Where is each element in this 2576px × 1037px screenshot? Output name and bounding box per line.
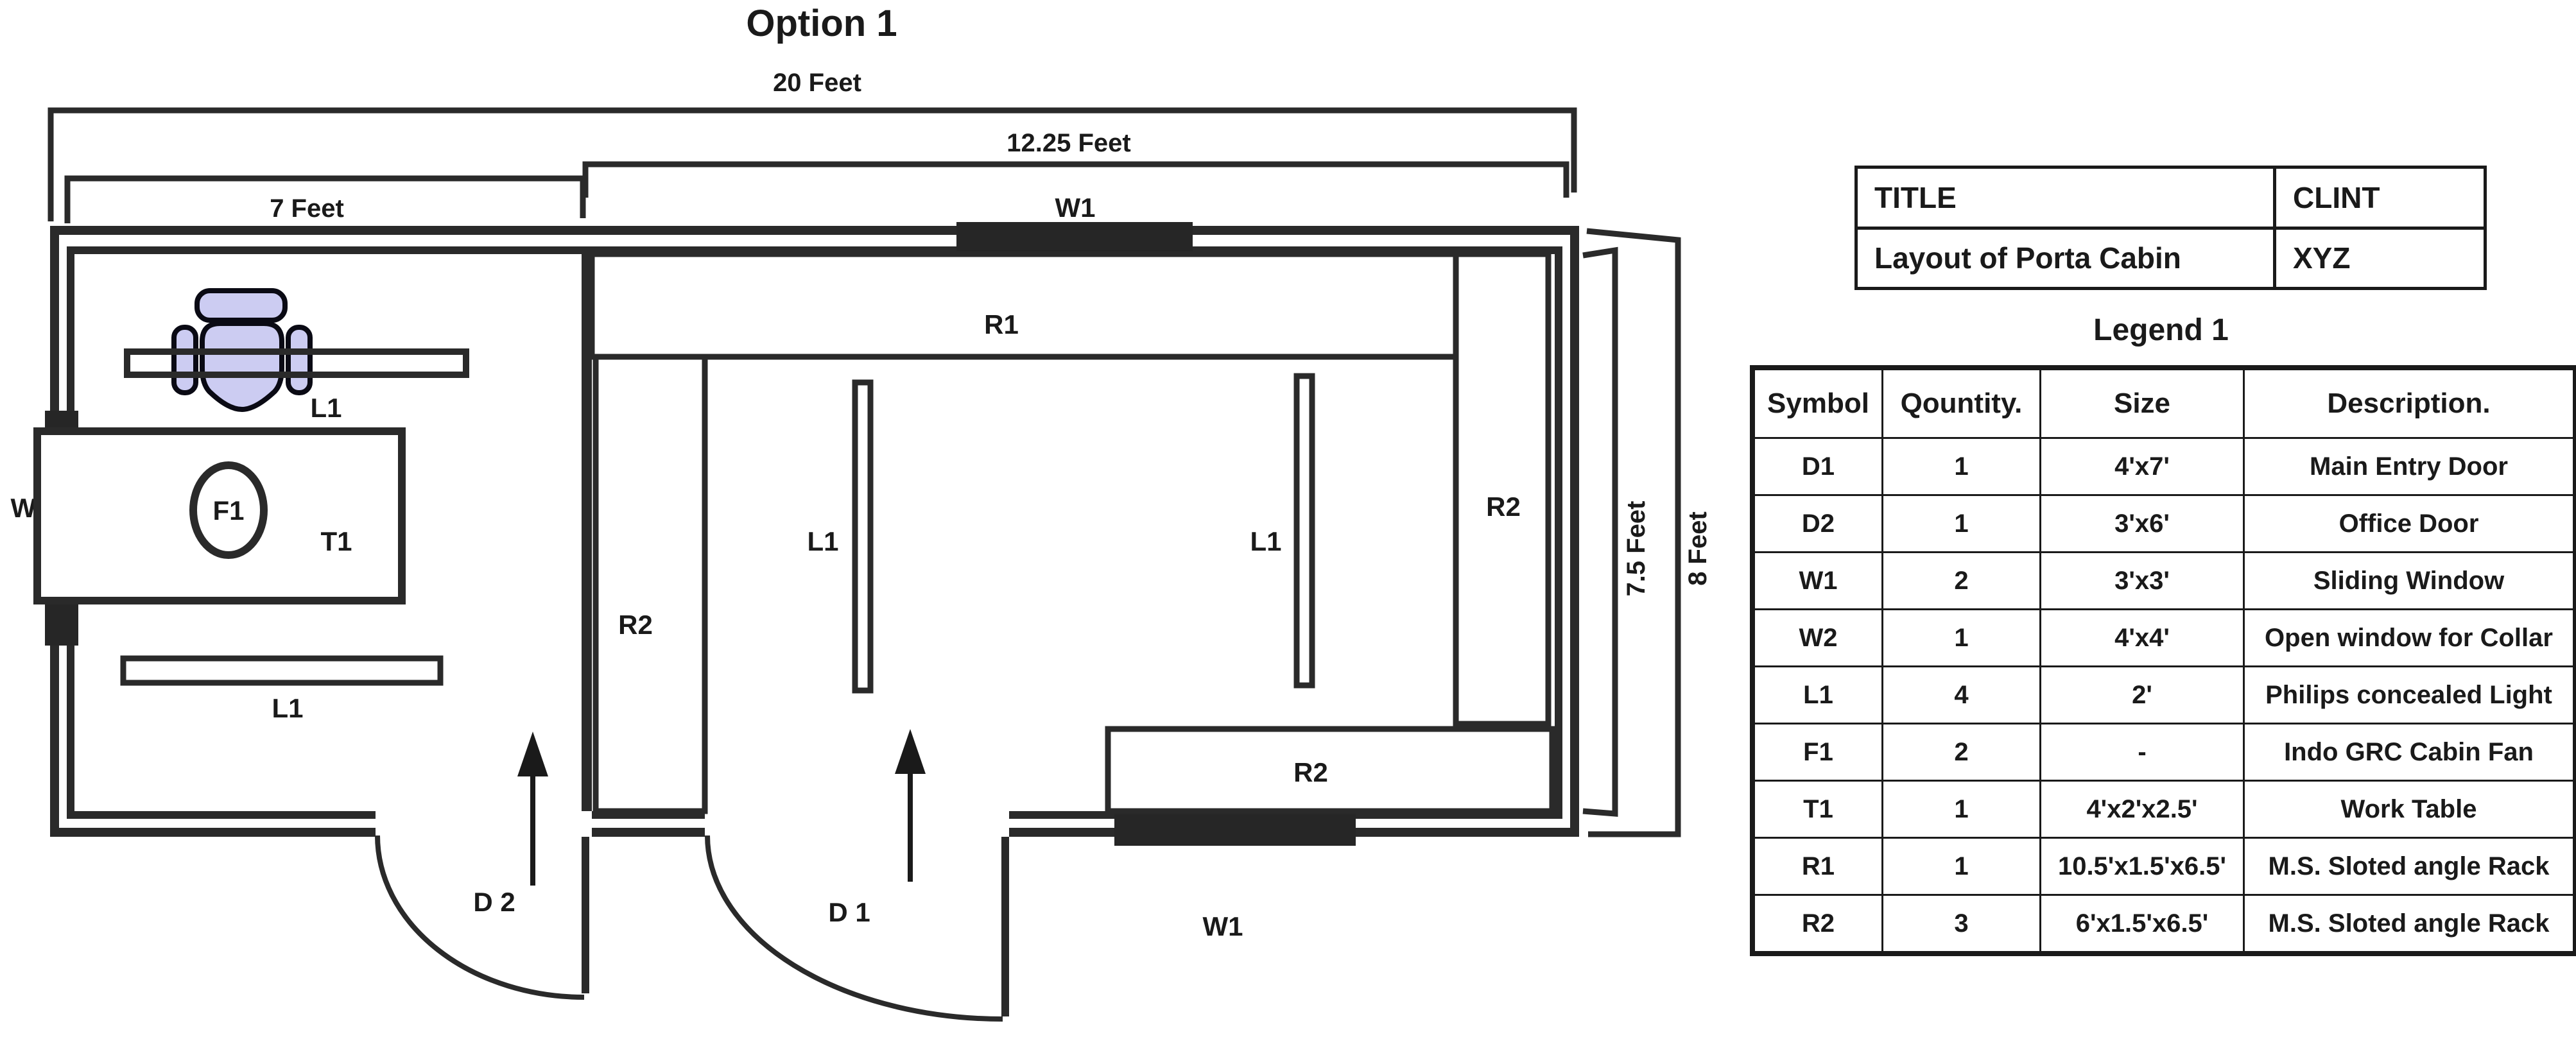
- legend-cell: D1: [1752, 438, 1883, 495]
- chair-seat: [202, 323, 282, 409]
- fan-f1-label: F1: [212, 495, 244, 526]
- legend-cell: Open window for Collar: [2244, 610, 2576, 667]
- chair-headrest: [197, 291, 285, 320]
- legend-cell: 1: [1883, 610, 2041, 667]
- legend-cell: 1: [1883, 495, 2041, 553]
- title-block-title-header: TITLE: [1856, 167, 2275, 228]
- legend-cell: D2: [1752, 495, 1883, 553]
- title-block-title-value: Layout of Porta Cabin: [1856, 228, 2275, 289]
- legend-cell: W1: [1752, 553, 1883, 610]
- dimension-12-25-feet-label: 12.25 Feet: [1007, 129, 1130, 157]
- legend-row-l1: L1 4 2' Philips concealed Light: [1752, 667, 2575, 724]
- door-d2-label: D 2: [473, 887, 515, 917]
- legend-cell: 2': [2041, 667, 2244, 724]
- chair-armrest-left: [174, 327, 196, 393]
- legend-cell: M.S. Sloted angle Rack: [2244, 838, 2576, 895]
- legend-cell: Office Door: [2244, 495, 2576, 553]
- light-l1-office-lower: [123, 658, 440, 683]
- dimension-7-5-feet-bracket: [1583, 250, 1615, 814]
- light-l1-main-right-label: L1: [1250, 526, 1281, 556]
- rack-r2-bottom-label: R2: [1293, 757, 1328, 787]
- legend-cell: -: [2041, 724, 2244, 781]
- legend-cell: 2: [1883, 724, 2041, 781]
- rack-r2-right-label: R2: [1486, 492, 1521, 522]
- legend-row-d2: D2 1 3'x6' Office Door: [1752, 495, 2575, 553]
- legend-cell: 3'x3': [2041, 553, 2244, 610]
- legend-cell: 4'x4': [2041, 610, 2244, 667]
- wall-right-inner: [1555, 246, 1562, 819]
- dimension-8-feet-label: 8 Feet: [1684, 511, 1712, 586]
- light-l1-office-lower-label: L1: [272, 693, 303, 723]
- legend-row-d1: D1 1 4'x7' Main Entry Door: [1752, 438, 2575, 495]
- door-d2-arrow-head: [517, 732, 548, 776]
- wall-right-outer: [1570, 226, 1579, 837]
- rack-r2-right: [1456, 254, 1548, 724]
- window-w1-top-label: W1: [1055, 193, 1096, 223]
- legend-header-description: Description.: [2244, 368, 2576, 438]
- legend-cell: W2: [1752, 610, 1883, 667]
- title-block-client-value: XYZ: [2275, 228, 2485, 289]
- legend-cell: 1: [1883, 838, 2041, 895]
- legend-cell: Indo GRC Cabin Fan: [2244, 724, 2576, 781]
- legend-cell: 4'x7': [2041, 438, 2244, 495]
- legend-cell: 2: [1883, 553, 2041, 610]
- legend-title: Legend 1: [1750, 313, 2572, 348]
- legend-cell: 10.5'x1.5'x6.5': [2041, 838, 2244, 895]
- porta-cabin-layout-drawing: Option 1 20 Feet 12.25 Feet 7 Feet 7.5 F…: [0, 0, 2576, 1037]
- work-table-t1-label: T1: [320, 526, 352, 556]
- wall-bottom-inner-left: [67, 811, 376, 819]
- title-block-value-row: Layout of Porta Cabin XYZ: [1856, 228, 2485, 289]
- legend-table: Symbol Qountity. Size Description. D1 1 …: [1750, 365, 2576, 956]
- dimension-12-25-feet: 12.25 Feet: [585, 129, 1566, 198]
- legend-cell: 4: [1883, 667, 2041, 724]
- legend-cell: L1: [1752, 667, 1883, 724]
- rack-r1-label: R1: [984, 309, 1019, 339]
- legend-row-r2: R2 3 6'x1.5'x6.5' M.S. Sloted angle Rack: [1752, 895, 2575, 954]
- dimension-7-feet: 7 Feet: [67, 178, 583, 223]
- rack-r2-left-label: R2: [618, 610, 653, 640]
- dimension-7-5-feet-label: 7.5 Feet: [1622, 501, 1650, 597]
- page-title: Option 1: [746, 3, 897, 44]
- dimension-7-5-feet: 7.5 Feet: [1583, 250, 1650, 814]
- light-l1-main-left-label: L1: [807, 526, 838, 556]
- legend-header-row: Symbol Qountity. Size Description.: [1752, 368, 2575, 438]
- title-block-header-row: TITLE CLINT: [1856, 167, 2485, 228]
- legend-cell: T1: [1752, 781, 1883, 838]
- legend-cell: Sliding Window: [2244, 553, 2576, 610]
- dimension-20-feet-label: 20 Feet: [773, 69, 861, 97]
- legend-header-symbol: Symbol: [1752, 368, 1883, 438]
- legend-row-t1: T1 1 4'x2'x2.5' Work Table: [1752, 781, 2575, 838]
- legend-cell: Work Table: [2244, 781, 2576, 838]
- legend-cell: 3'x6': [2041, 495, 2244, 553]
- legend-cell: 1: [1883, 438, 2041, 495]
- legend-cell: 3: [1883, 895, 2041, 954]
- wall-bottom-outer-mid: [592, 828, 705, 837]
- door-d1-label: D 1: [828, 897, 870, 927]
- door-d1-arrow-head: [895, 729, 926, 774]
- door-d2: D 2: [377, 732, 585, 997]
- title-block: TITLE CLINT Layout of Porta Cabin XYZ: [1854, 166, 2487, 290]
- light-l1-office-upper-label: L1: [310, 393, 341, 423]
- legend-row-r1: R1 1 10.5'x1.5'x6.5' M.S. Sloted angle R…: [1752, 838, 2575, 895]
- wall-bottom-outer-left: [50, 828, 376, 837]
- dimension-7-feet-label: 7 Feet: [270, 194, 344, 223]
- rack-r2-left: [596, 357, 705, 811]
- legend-row-w1: W1 2 3'x3' Sliding Window: [1752, 553, 2575, 610]
- legend-header-size: Size: [2041, 368, 2244, 438]
- wall-top-outer: [50, 226, 1579, 235]
- legend-row-w2: W2 1 4'x4' Open window for Collar: [1752, 610, 2575, 667]
- light-l1-main-left: [855, 382, 870, 690]
- rack-r2-bottom: [1108, 729, 1552, 811]
- light-l1-main-right: [1297, 376, 1312, 685]
- legend-cell: M.S. Sloted angle Rack: [2244, 895, 2576, 954]
- legend-cell: Main Entry Door: [2244, 438, 2576, 495]
- door-d1-swing-arc: [707, 836, 1003, 1019]
- legend-cell: F1: [1752, 724, 1883, 781]
- legend-cell: 1: [1883, 781, 2041, 838]
- legend-cell: 4'x2'x2.5': [2041, 781, 2244, 838]
- legend-cell: 6'x1.5'x6.5': [2041, 895, 2244, 954]
- chair-armrest-right: [288, 327, 310, 393]
- door-d1: D 1: [707, 729, 1005, 1019]
- window-w1-bottom-label: W1: [1203, 911, 1243, 941]
- legend-header-quantity: Qountity.: [1883, 368, 2041, 438]
- legend-cell: Philips concealed Light: [2244, 667, 2576, 724]
- rack-r1: [592, 254, 1456, 357]
- legend-row-f1: F1 2 - Indo GRC Cabin Fan: [1752, 724, 2575, 781]
- legend-cell: R1: [1752, 838, 1883, 895]
- legend-cell: R2: [1752, 895, 1883, 954]
- title-block-client-header: CLINT: [2275, 167, 2485, 228]
